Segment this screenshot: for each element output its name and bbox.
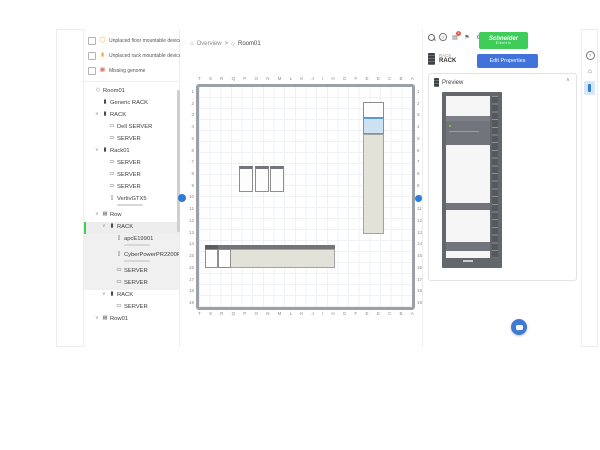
chat-icon <box>516 325 523 330</box>
info-icon[interactable]: ? <box>585 50 595 60</box>
column-label: N <box>266 311 269 316</box>
device-type-icon <box>116 280 122 286</box>
rack-icon <box>428 53 435 65</box>
collapse-chevron-icon[interactable]: ∧ <box>566 77 570 83</box>
properties-panel-tab-selected[interactable] <box>584 81 595 95</box>
device-type-icon <box>102 112 108 118</box>
chevron-down-icon[interactable]: ∨ <box>102 292 107 297</box>
device-type-icon <box>109 124 115 130</box>
tree-item-text: SERVER <box>124 280 148 286</box>
selected-object-title: RACK RACK <box>428 53 456 65</box>
tree-item-text: Generic RACK <box>110 100 148 106</box>
device-type-icon <box>116 268 122 274</box>
column-label: S <box>209 76 212 81</box>
filter-checkbox[interactable] <box>88 52 96 60</box>
device-type-icon <box>116 236 122 242</box>
column-label: F <box>355 76 358 81</box>
chevron-down-icon[interactable]: ∨ <box>95 212 100 217</box>
tree-item[interactable]: ∨ RACK <box>84 110 179 122</box>
tree-item-label: RACK <box>117 224 133 230</box>
tree-item-text: RACK <box>117 224 133 230</box>
column-label: B <box>400 76 403 81</box>
tree-item-text: SERVER <box>117 136 141 142</box>
column-labels-top: TSRQPONMLKJIHGFEDCBA <box>198 76 414 81</box>
column-label: M <box>278 76 282 81</box>
tree-item-text: SERVER <box>117 184 141 190</box>
tree-item-text: SERVER <box>117 160 141 166</box>
row-label: 12 <box>189 218 194 223</box>
tree-item-label: Generic RACK <box>110 100 148 106</box>
tree-item-label: apcE19901 <box>124 236 153 242</box>
placed-row-horizontal[interactable] <box>205 245 335 268</box>
column-label: S <box>209 311 212 316</box>
column-label: I <box>322 311 323 316</box>
tree-item-label: CyberPowerPR2200R... <box>124 252 179 258</box>
panel-collapse-handle-left[interactable] <box>178 194 186 202</box>
tool-rail: ⇖ ✥ ⤢ A ⊕ ⊖ ⊡ ↺ <box>56 29 84 347</box>
filter-warning-icon <box>99 38 106 44</box>
tree-item-label: Rack01 <box>110 148 130 154</box>
row-label: 17 <box>189 277 194 282</box>
tree-item-label: Dell SERVER <box>117 124 152 130</box>
tree-item[interactable]: SERVER <box>84 158 179 170</box>
column-label: C <box>388 76 391 81</box>
column-label: L <box>290 311 293 316</box>
tree-item-label: SERVER <box>117 136 141 142</box>
tree-item-label: RACK <box>110 112 126 118</box>
row-label: 8 <box>191 171 194 176</box>
row-label: 3 <box>191 112 194 117</box>
tree-item-text: apcE19901 <box>124 236 153 246</box>
room-icon: ◇ <box>231 41 235 47</box>
filter-list: Unplaced floor mountable devices Unplace… <box>84 33 180 78</box>
column-label: D <box>377 76 380 81</box>
tree-item-subtext <box>117 204 143 207</box>
row-label: 4 <box>191 124 194 129</box>
column-label: Q <box>232 76 236 81</box>
row-labels-left: 12345678910111213141516171819 <box>186 89 194 305</box>
tree-item-label: SERVER <box>117 172 141 178</box>
column-label: N <box>266 76 269 81</box>
column-label: Q <box>232 311 236 316</box>
breadcrumb-section[interactable]: Overview <box>197 41 222 47</box>
device-type-icon <box>109 160 115 166</box>
tree-item-text: SERVER <box>124 268 148 274</box>
tree-item-label: SERVER <box>117 184 141 190</box>
placed-row-vertical[interactable] <box>363 134 384 234</box>
column-label: C <box>388 311 391 316</box>
column-label: R <box>220 311 223 316</box>
tree-item-label: Row <box>110 212 122 218</box>
tree-item-text: CyberPowerPR2200R... <box>124 252 179 262</box>
column-label: A <box>411 76 414 81</box>
search-icon[interactable] <box>427 33 435 41</box>
row-label: 2 <box>191 101 194 106</box>
row-label: 10 <box>189 194 194 199</box>
tree-item[interactable]: SERVER <box>84 302 179 314</box>
device-type-icon <box>109 292 115 298</box>
tree-item[interactable]: SERVER <box>84 266 179 278</box>
column-label: J <box>311 76 313 81</box>
row-label: 18 <box>189 288 194 293</box>
panel-collapse-handle-right[interactable] <box>415 195 422 202</box>
tree-item-text: SERVER <box>117 172 141 178</box>
flag-icon[interactable]: ⚑ <box>463 33 471 41</box>
tree-item[interactable]: ∨ Row01 <box>84 314 179 326</box>
row-label: 7 <box>191 159 194 164</box>
rack-device <box>446 203 490 210</box>
tree-item[interactable]: ∨ Rack01 <box>84 146 179 158</box>
column-label: R <box>220 76 223 81</box>
row-label: 6 <box>191 148 194 153</box>
rack-icon <box>434 78 439 87</box>
placed-rack[interactable] <box>363 102 384 118</box>
device-type-icon <box>102 316 108 322</box>
help-icon[interactable]: ? <box>439 33 447 41</box>
column-label: E <box>365 76 368 81</box>
tree-item-text: Row <box>110 212 122 218</box>
device-tree: Room01 Generic RACK ∨ RACK Dell SERVER <box>84 86 179 326</box>
device-type-icon <box>109 136 115 142</box>
placed-rack[interactable] <box>205 249 218 268</box>
device-type-icon <box>102 100 108 106</box>
row-empty-space[interactable] <box>231 249 335 268</box>
tree-item[interactable]: Generic RACK <box>84 98 179 110</box>
device-type-icon <box>102 148 108 154</box>
object-name: RACK <box>439 58 456 65</box>
schneider-logo: Schneider Electric <box>479 32 528 49</box>
column-label: P <box>243 311 246 316</box>
tree-item-label: Room01 <box>103 88 125 94</box>
column-label: K <box>300 76 303 81</box>
column-label: E <box>365 311 368 316</box>
column-label: G <box>343 311 347 316</box>
tree-item-text: Rack01 <box>110 148 130 154</box>
device-type-icon <box>95 88 101 94</box>
column-label: T <box>198 76 201 81</box>
chevron-down-icon[interactable]: ∨ <box>95 148 100 153</box>
column-label: I <box>322 76 323 81</box>
tree-item-subtext <box>124 260 150 263</box>
tree-item[interactable]: SERVER <box>84 278 179 290</box>
tree-item-label: Row01 <box>110 316 128 322</box>
divider <box>84 81 179 82</box>
column-label: K <box>300 311 303 316</box>
chevron-down-icon[interactable]: ∨ <box>95 112 100 117</box>
tree-item-label: VertivGTX5 <box>117 196 147 202</box>
chevron-down-icon[interactable]: ∨ <box>95 316 100 321</box>
device-type-icon <box>109 172 115 178</box>
rack-device <box>446 242 490 251</box>
preview-title: Preview <box>442 80 463 86</box>
tree-item[interactable]: SERVER <box>84 134 179 146</box>
rack-u-numbers <box>492 96 498 258</box>
row-label: 1 <box>191 89 194 94</box>
tree-item-text: SERVER <box>124 304 148 310</box>
breadcrumb: ⌂ Overview > ◇ Room01 <box>190 41 261 47</box>
device-type-icon <box>102 212 108 218</box>
tree-item-text: VertivGTX5 <box>117 196 147 206</box>
tree-item-label: SERVER <box>124 280 148 286</box>
side-utility-strip <box>581 29 598 347</box>
filter-row: Unplaced rack mountable devices <box>84 48 180 63</box>
column-label: J <box>311 311 313 316</box>
notifications-icon[interactable]: ▤1 <box>451 33 459 41</box>
device-type-icon <box>109 184 115 190</box>
tree-item[interactable]: ∨ RACK <box>84 222 179 234</box>
column-label: H <box>331 76 334 81</box>
device-type-icon <box>109 196 115 202</box>
column-label: L <box>290 76 293 81</box>
filter-warning-icon <box>99 68 106 74</box>
chat-support-button[interactable] <box>511 319 527 335</box>
placed-rack[interactable] <box>218 249 231 268</box>
tree-item[interactable]: CyberPowerPR2200R... <box>84 250 179 266</box>
filter-label: Missing genome <box>109 68 145 74</box>
tree-item[interactable]: Room01 <box>84 86 179 98</box>
page: ⇖ ✥ ⤢ A ⊕ ⊖ ⊡ ↺ Unplaced floor mountable… <box>0 0 600 450</box>
device-type-icon <box>116 304 122 310</box>
row-label: 19 <box>189 300 194 305</box>
tree-item[interactable]: SERVER <box>84 182 179 194</box>
tree-item[interactable]: VertivGTX5 <box>84 194 179 210</box>
row-label: 9 <box>191 183 194 188</box>
tree-item-label: SERVER <box>117 160 141 166</box>
column-label: O <box>254 311 258 316</box>
chevron-down-icon[interactable]: ∨ <box>102 224 107 229</box>
column-label: D <box>377 311 380 316</box>
filter-checkbox[interactable] <box>88 67 96 75</box>
row-label: 13 <box>189 230 194 235</box>
row-label: 16 <box>189 265 194 270</box>
tree-item-text: RACK <box>117 292 133 298</box>
home-icon: ⌂ <box>190 41 194 47</box>
column-label: A <box>411 311 414 316</box>
tree-item[interactable]: SERVER <box>84 170 179 182</box>
notification-badge: 1 <box>456 31 461 36</box>
filter-row: Missing genome <box>84 63 180 78</box>
rack-device <box>446 116 490 145</box>
tree-item[interactable]: apcE19901 <box>84 234 179 250</box>
filter-checkbox[interactable] <box>88 37 96 45</box>
column-labels-bottom: TSRQPONMLKJIHGFEDCBA <box>198 311 414 316</box>
rack-group <box>239 166 284 192</box>
breadcrumb-current: Room01 <box>238 41 261 47</box>
placed-rack[interactable] <box>239 166 253 192</box>
filter-label: Unplaced floor mountable devices <box>109 38 180 44</box>
column-label: B <box>400 311 403 316</box>
device-type-icon <box>116 252 122 258</box>
filter-label: Unplaced rack mountable devices <box>109 53 180 59</box>
column-label: F <box>355 311 358 316</box>
tree-item-label: SERVER <box>124 304 148 310</box>
column-label: G <box>343 76 347 81</box>
column-label: H <box>331 311 334 316</box>
rack-bottom-panel <box>446 258 490 264</box>
column-label: M <box>278 311 282 316</box>
column-label: O <box>254 76 258 81</box>
edit-properties-button[interactable]: Edit Properties <box>477 54 538 68</box>
column-label: P <box>243 76 246 81</box>
tree-item-label: SERVER <box>124 268 148 274</box>
filter-warning-icon <box>99 53 106 59</box>
tree-item[interactable]: ∨ RACK <box>84 290 179 302</box>
row-label: 14 <box>189 241 194 246</box>
placed-rack-selected[interactable] <box>363 118 384 134</box>
logo-line2: Electric <box>496 42 511 46</box>
column-label: T <box>198 311 201 316</box>
row-label: 5 <box>191 136 194 141</box>
placed-rack[interactable] <box>255 166 269 192</box>
placed-rack[interactable] <box>270 166 284 192</box>
tree-item-text: Room01 <box>103 88 125 94</box>
row-label: 15 <box>189 253 194 258</box>
home-icon[interactable]: ⌂ <box>585 66 595 76</box>
tree-item-text: RACK <box>110 112 126 118</box>
tree-item[interactable]: ∨ Row <box>84 210 179 222</box>
tree-item-text: Dell SERVER <box>117 124 152 130</box>
preview-header: Preview <box>434 78 463 87</box>
tree-item-subtext <box>124 244 150 247</box>
row-label: 11 <box>189 206 194 211</box>
tree-item-text: Row01 <box>110 316 128 322</box>
breadcrumb-separator: > <box>225 41 229 47</box>
rack-preview-graphic <box>442 92 502 268</box>
tree-item-label: RACK <box>117 292 133 298</box>
device-type-icon <box>109 224 115 230</box>
filter-row: Unplaced floor mountable devices <box>84 33 180 48</box>
tree-item[interactable]: Dell SERVER <box>84 122 179 134</box>
